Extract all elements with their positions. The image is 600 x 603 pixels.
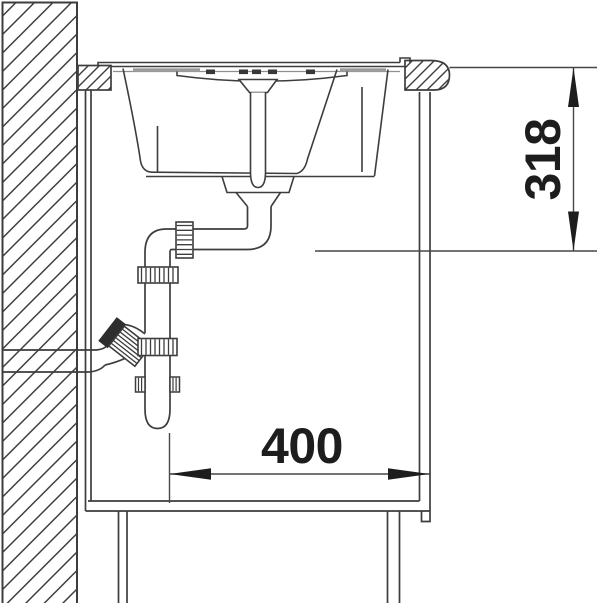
dimension-400-label: 400 bbox=[261, 418, 343, 474]
rim-seal-left bbox=[133, 68, 200, 72]
countertop-left-section bbox=[78, 66, 111, 91]
countertop-right-section bbox=[405, 61, 450, 91]
trap-body-nut bbox=[138, 339, 177, 356]
arrow-right-icon bbox=[388, 468, 430, 480]
dimension-318: 318 bbox=[315, 68, 597, 252]
overflow-standpipe bbox=[239, 80, 277, 188]
arrow-up-icon bbox=[568, 68, 579, 108]
wall-hatched bbox=[3, 3, 78, 603]
union-nut-vertical bbox=[138, 267, 178, 283]
bowl-left-wall bbox=[123, 69, 152, 173]
dimension-400: 400 bbox=[170, 418, 430, 503]
bowl-right-wall bbox=[297, 70, 337, 174]
cabinet-left-panel bbox=[86, 90, 92, 511]
union-nut-horizontal bbox=[176, 222, 193, 258]
bowl-right-outer bbox=[375, 70, 389, 177]
plinth bbox=[119, 511, 400, 603]
drain-funnel bbox=[236, 193, 281, 207]
cabinet-right-panel bbox=[420, 92, 431, 511]
cabinet-floor bbox=[86, 501, 431, 511]
bowl-bottom-inner bbox=[152, 172, 297, 173]
cabinet-right-foot bbox=[422, 511, 431, 522]
arrow-left-icon bbox=[170, 468, 212, 480]
arrow-down-icon bbox=[568, 212, 579, 252]
sink-rim bbox=[98, 58, 410, 81]
rim-seal-right bbox=[340, 68, 386, 72]
trap-cup bbox=[145, 356, 170, 429]
trap-cup-nut-tabs bbox=[136, 377, 180, 392]
technical-drawing-page: 318 400 bbox=[0, 0, 600, 603]
sink-installation-drawing: 318 400 bbox=[0, 0, 600, 603]
dimension-318-label: 318 bbox=[515, 119, 571, 201]
